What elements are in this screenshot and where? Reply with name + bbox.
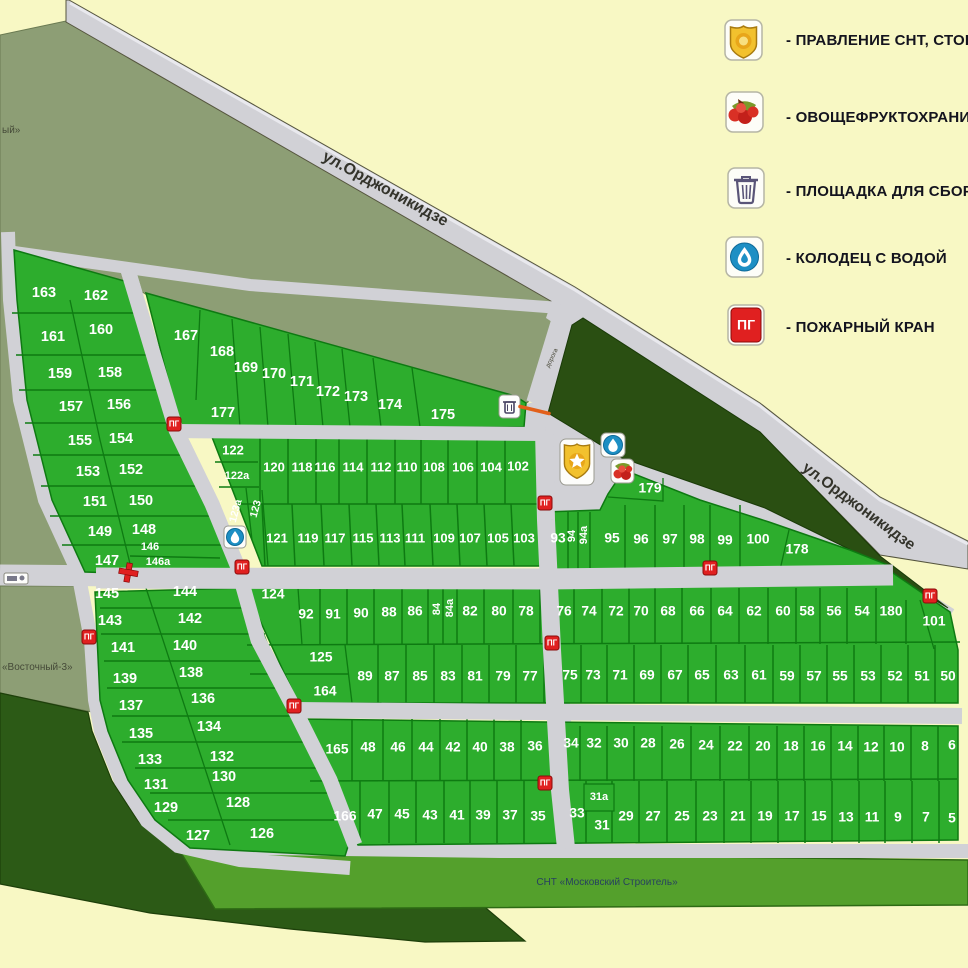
svg-text:112: 112 (371, 459, 392, 474)
svg-text:8: 8 (921, 739, 929, 754)
svg-text:52: 52 (887, 669, 903, 684)
svg-text:174: 174 (378, 397, 402, 413)
svg-text:88: 88 (381, 605, 397, 620)
svg-text:21: 21 (730, 809, 746, 824)
svg-text:26: 26 (669, 737, 685, 752)
svg-text:59: 59 (779, 669, 795, 684)
svg-text:55: 55 (832, 669, 848, 684)
svg-text:30: 30 (613, 736, 629, 751)
svg-text:145: 145 (95, 586, 119, 602)
svg-text:78: 78 (518, 604, 534, 619)
svg-text:135: 135 (129, 726, 153, 742)
svg-text:34: 34 (563, 736, 579, 751)
svg-text:143: 143 (98, 613, 122, 629)
svg-text:12: 12 (863, 740, 879, 755)
svg-text:128: 128 (226, 795, 250, 811)
svg-text:ПГ: ПГ (540, 779, 551, 788)
svg-text:157: 157 (59, 399, 83, 415)
svg-text:161: 161 (41, 329, 65, 345)
svg-text:139: 139 (113, 671, 137, 687)
svg-text:108: 108 (423, 459, 445, 474)
svg-text:«Восточный-3»: «Восточный-3» (2, 662, 73, 673)
svg-text:16: 16 (810, 739, 826, 754)
svg-text:146: 146 (141, 541, 159, 553)
svg-text:31: 31 (594, 818, 610, 833)
svg-text:74: 74 (581, 604, 597, 619)
svg-text:9: 9 (894, 810, 902, 825)
svg-text:152: 152 (119, 462, 143, 478)
svg-text:41: 41 (449, 808, 465, 823)
svg-text:ПГ: ПГ (237, 563, 248, 572)
svg-text:35: 35 (530, 809, 546, 824)
svg-text:124: 124 (261, 587, 284, 602)
svg-text:- ОВОЩЕФРУКТОХРАНИЛИЩЕ: - ОВОЩЕФРУКТОХРАНИЛИЩЕ (786, 109, 968, 126)
svg-text:58: 58 (799, 604, 815, 619)
svg-text:148: 148 (132, 522, 156, 538)
svg-text:ПГ: ПГ (169, 420, 180, 429)
svg-text:- ПОЖАРНЫЙ КРАН: - ПОЖАРНЫЙ КРАН (786, 318, 935, 336)
svg-text:180: 180 (879, 604, 902, 619)
svg-text:163: 163 (32, 285, 56, 301)
svg-text:159: 159 (48, 366, 72, 382)
svg-text:62: 62 (746, 604, 762, 619)
svg-text:119: 119 (298, 530, 319, 545)
svg-text:66: 66 (689, 604, 705, 619)
svg-text:57: 57 (806, 669, 822, 684)
svg-text:165: 165 (325, 742, 348, 757)
svg-text:ПГ: ПГ (705, 564, 716, 573)
svg-text:31a: 31a (590, 791, 609, 803)
svg-text:33: 33 (569, 806, 585, 821)
svg-text:138: 138 (179, 665, 203, 681)
svg-text:164: 164 (313, 684, 336, 699)
svg-text:5: 5 (948, 811, 956, 826)
svg-text:70: 70 (633, 604, 649, 619)
svg-text:47: 47 (367, 807, 383, 822)
svg-text:65: 65 (694, 668, 710, 683)
svg-text:130: 130 (212, 769, 236, 785)
svg-text:118: 118 (292, 459, 313, 474)
svg-text:51: 51 (914, 669, 930, 684)
svg-text:39: 39 (475, 808, 491, 823)
svg-text:111: 111 (405, 530, 425, 545)
svg-text:14: 14 (837, 739, 853, 754)
svg-text:17: 17 (784, 809, 800, 824)
svg-text:- КОЛОДЕЦ С ВОДОЙ: - КОЛОДЕЦ С ВОДОЙ (786, 249, 947, 267)
svg-text:154: 154 (109, 431, 133, 447)
svg-text:60: 60 (775, 604, 791, 619)
svg-text:ПГ: ПГ (84, 633, 95, 642)
svg-text:100: 100 (746, 532, 769, 547)
svg-text:115: 115 (353, 530, 374, 545)
svg-text:136: 136 (191, 691, 215, 707)
svg-text:85: 85 (412, 669, 428, 684)
svg-text:87: 87 (384, 669, 400, 684)
svg-text:153: 153 (76, 464, 100, 480)
svg-text:83: 83 (440, 669, 456, 684)
svg-text:63: 63 (723, 668, 739, 683)
svg-text:53: 53 (860, 669, 876, 684)
svg-text:107: 107 (459, 530, 481, 545)
svg-text:44: 44 (418, 740, 434, 755)
svg-text:171: 171 (290, 374, 314, 390)
svg-text:167: 167 (174, 328, 198, 344)
svg-text:ый»: ый» (2, 125, 21, 136)
svg-text:95: 95 (604, 531, 620, 546)
svg-text:43: 43 (422, 808, 438, 823)
svg-text:38: 38 (499, 740, 515, 755)
svg-text:6: 6 (948, 738, 956, 753)
svg-text:СНТ «Московский Строитель»: СНТ «Московский Строитель» (536, 877, 678, 888)
svg-text:80: 80 (491, 604, 507, 619)
svg-text:79: 79 (495, 669, 511, 684)
svg-text:36: 36 (527, 739, 543, 754)
svg-text:109: 109 (433, 530, 455, 545)
svg-text:61: 61 (751, 668, 767, 683)
svg-text:32: 32 (586, 736, 602, 751)
svg-text:84a: 84a (444, 598, 456, 617)
svg-text:140: 140 (173, 638, 197, 654)
svg-text:117: 117 (325, 530, 346, 545)
svg-text:ПГ: ПГ (925, 592, 936, 601)
svg-text:93: 93 (550, 531, 566, 546)
svg-text:114: 114 (343, 459, 365, 474)
svg-text:105: 105 (487, 530, 509, 545)
svg-text:71: 71 (612, 668, 628, 683)
svg-text:46: 46 (390, 740, 406, 755)
svg-text:175: 175 (431, 407, 455, 423)
svg-text:131: 131 (144, 777, 168, 793)
svg-text:89: 89 (357, 669, 373, 684)
svg-text:134: 134 (197, 719, 221, 735)
svg-text:102: 102 (507, 458, 529, 473)
svg-text:37: 37 (502, 808, 518, 823)
svg-text:121: 121 (266, 530, 288, 545)
svg-text:68: 68 (660, 604, 676, 619)
svg-text:151: 151 (83, 494, 107, 510)
svg-text:67: 67 (667, 668, 683, 683)
svg-text:96: 96 (633, 532, 649, 547)
svg-text:122a: 122a (225, 470, 250, 482)
svg-text:92: 92 (298, 607, 314, 622)
svg-text:54: 54 (854, 604, 870, 619)
svg-text:113: 113 (380, 530, 401, 545)
svg-text:160: 160 (89, 322, 113, 338)
svg-text:77: 77 (522, 669, 538, 684)
svg-text:20: 20 (755, 739, 771, 754)
svg-text:158: 158 (98, 365, 122, 381)
svg-text:97: 97 (662, 532, 678, 547)
svg-text:156: 156 (107, 397, 131, 413)
svg-text:15: 15 (811, 809, 827, 824)
svg-text:177: 177 (211, 405, 235, 421)
svg-text:11: 11 (865, 810, 880, 825)
svg-text:- ПРАВЛЕНИЕ СНТ, СТОРОЖ: - ПРАВЛЕНИЕ СНТ, СТОРОЖ (786, 32, 968, 49)
svg-text:173: 173 (344, 389, 368, 405)
svg-text:24: 24 (698, 738, 714, 753)
svg-text:149: 149 (88, 524, 112, 540)
svg-text:64: 64 (717, 604, 733, 619)
svg-text:101: 101 (922, 614, 945, 629)
svg-text:178: 178 (785, 542, 808, 557)
svg-text:7: 7 (922, 810, 930, 825)
svg-text:18: 18 (783, 739, 799, 754)
svg-text:132: 132 (210, 749, 234, 765)
svg-text:75: 75 (562, 668, 578, 683)
svg-text:48: 48 (360, 740, 376, 755)
svg-text:94a: 94a (578, 525, 590, 544)
svg-text:76: 76 (556, 604, 572, 619)
svg-text:42: 42 (445, 740, 461, 755)
svg-text:82: 82 (462, 604, 478, 619)
svg-text:150: 150 (129, 493, 153, 509)
svg-text:162: 162 (84, 288, 108, 304)
svg-text:147: 147 (95, 553, 119, 569)
svg-text:155: 155 (68, 433, 92, 449)
svg-text:91: 91 (325, 607, 341, 622)
svg-text:110: 110 (397, 459, 418, 474)
svg-text:45: 45 (394, 807, 410, 822)
svg-text:90: 90 (353, 606, 369, 621)
svg-text:137: 137 (119, 698, 143, 714)
svg-text:- ПЛОЩАДКА ДЛЯ СБОРА МУСОРА: - ПЛОЩАДКА ДЛЯ СБОРА МУСОРА (786, 183, 968, 200)
svg-text:22: 22 (727, 739, 743, 754)
svg-text:28: 28 (640, 736, 656, 751)
svg-text:69: 69 (639, 668, 655, 683)
svg-text:23: 23 (702, 809, 718, 824)
svg-text:122: 122 (222, 442, 244, 457)
svg-text:ПГ: ПГ (289, 702, 300, 711)
svg-text:13: 13 (838, 810, 854, 825)
svg-text:141: 141 (111, 640, 135, 656)
svg-text:106: 106 (452, 459, 474, 474)
svg-text:170: 170 (262, 366, 286, 382)
svg-text:146a: 146a (146, 556, 171, 568)
svg-text:168: 168 (210, 344, 234, 360)
svg-text:29: 29 (618, 809, 634, 824)
svg-text:10: 10 (889, 740, 905, 755)
svg-text:144: 144 (173, 584, 197, 600)
svg-text:103: 103 (513, 530, 535, 545)
svg-text:25: 25 (674, 809, 690, 824)
svg-text:120: 120 (263, 459, 285, 474)
svg-text:142: 142 (178, 611, 202, 627)
svg-text:27: 27 (645, 809, 661, 824)
svg-text:98: 98 (689, 532, 705, 547)
svg-text:ПГ: ПГ (547, 639, 558, 648)
svg-text:94: 94 (566, 529, 578, 542)
svg-text:56: 56 (826, 604, 842, 619)
svg-text:ПГ: ПГ (540, 499, 551, 508)
svg-text:84: 84 (431, 602, 443, 615)
svg-text:116: 116 (315, 459, 336, 474)
svg-text:172: 172 (316, 384, 340, 400)
svg-text:125: 125 (309, 650, 332, 665)
svg-text:86: 86 (407, 604, 423, 619)
svg-text:40: 40 (472, 740, 488, 755)
svg-text:133: 133 (138, 752, 162, 768)
svg-text:73: 73 (585, 668, 601, 683)
svg-text:19: 19 (757, 809, 773, 824)
svg-text:179: 179 (638, 481, 661, 496)
svg-text:166: 166 (333, 809, 356, 824)
svg-text:81: 81 (467, 669, 483, 684)
svg-text:127: 127 (186, 828, 210, 844)
svg-text:104: 104 (480, 459, 502, 474)
svg-text:169: 169 (234, 360, 258, 376)
svg-text:72: 72 (608, 604, 624, 619)
svg-text:126: 126 (250, 826, 274, 842)
svg-text:99: 99 (717, 533, 733, 548)
svg-text:129: 129 (154, 800, 178, 816)
svg-text:50: 50 (940, 669, 956, 684)
svg-text:ПГ: ПГ (737, 317, 755, 333)
